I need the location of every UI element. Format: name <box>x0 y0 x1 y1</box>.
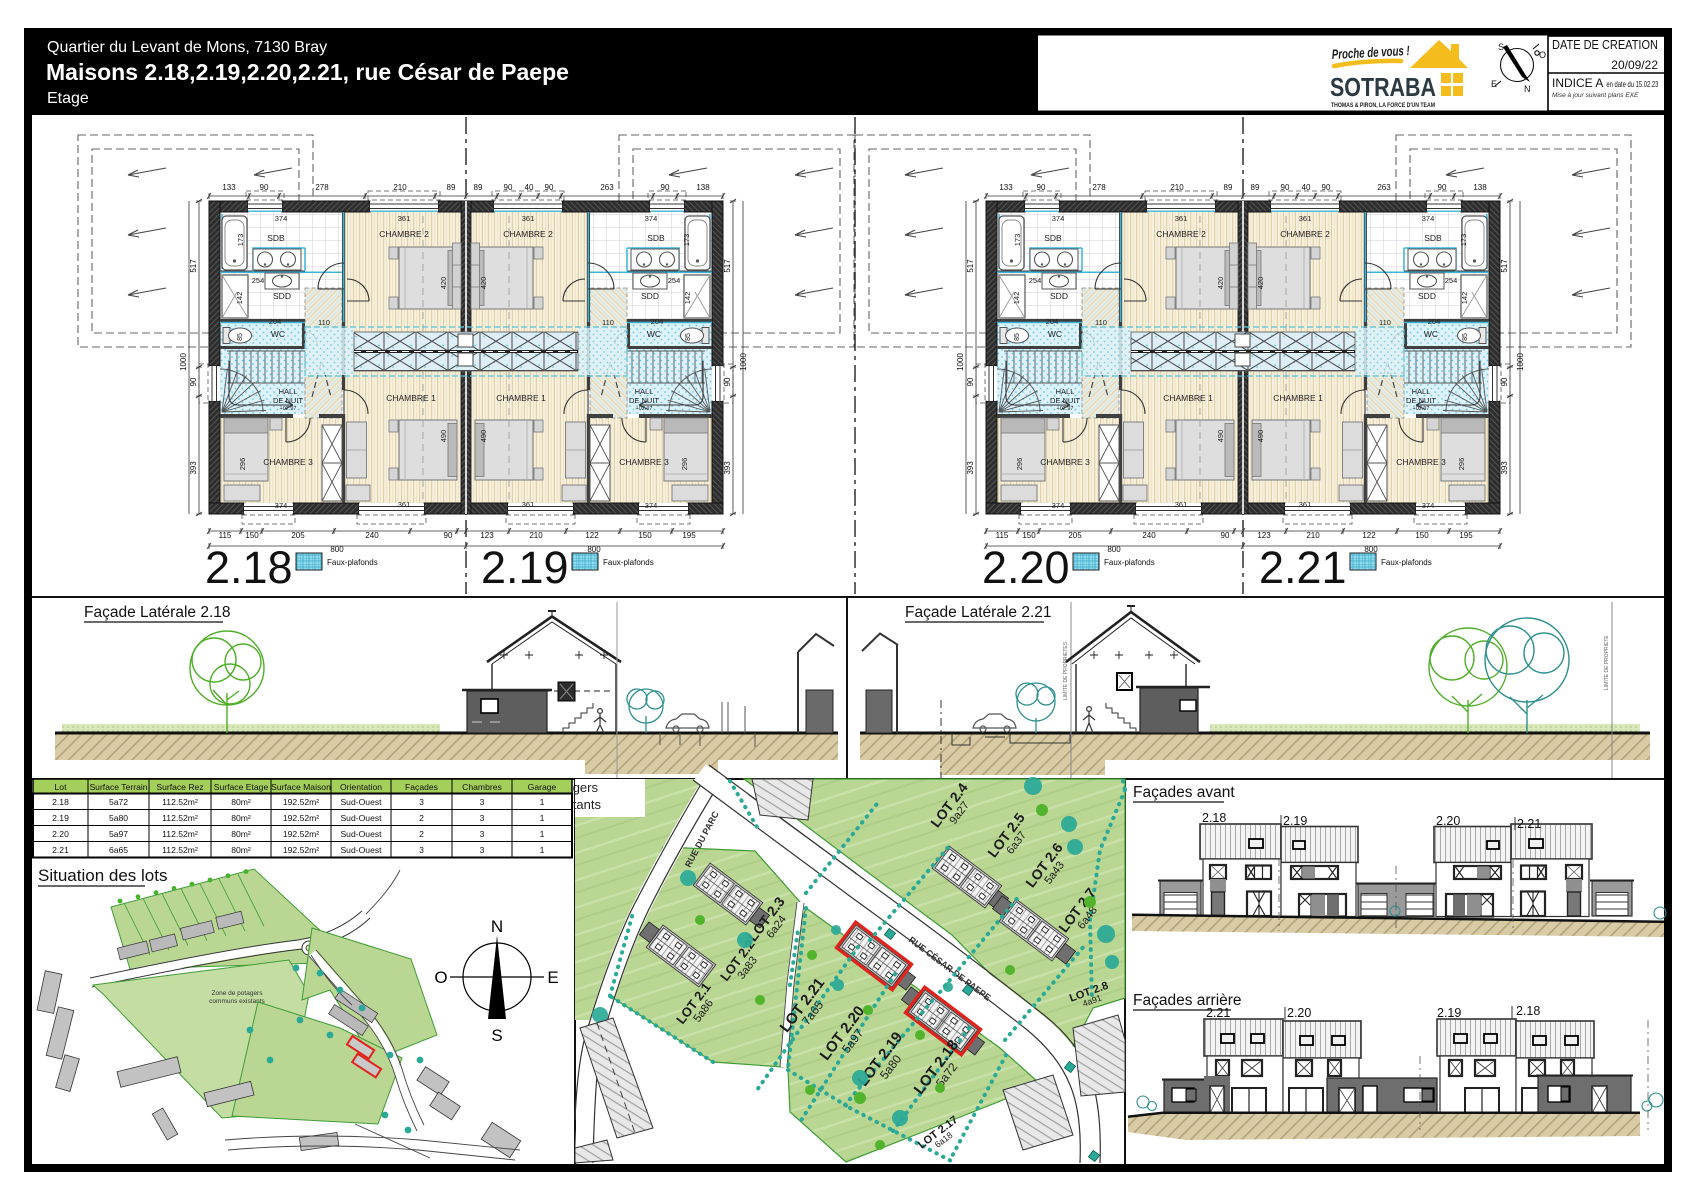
svg-text:89: 89 <box>474 183 483 192</box>
svg-text:Mise à jour suivant plans EXE: Mise à jour suivant plans EXE <box>1552 92 1639 99</box>
svg-text:490: 490 <box>479 430 488 443</box>
svg-text:110: 110 <box>1379 318 1391 327</box>
svg-text:5a80: 5a80 <box>109 813 128 823</box>
svg-text:1: 1 <box>540 813 545 823</box>
svg-text:3: 3 <box>480 829 485 839</box>
svg-text:Maisons 2.18,2.19,2.20,2.21, r: Maisons 2.18,2.19,2.20,2.21, rue César d… <box>46 59 569 85</box>
svg-text:2.21: 2.21 <box>1206 1006 1230 1020</box>
svg-text:Façades avant: Façades avant <box>1133 784 1235 801</box>
svg-text:DE NUIT: DE NUIT <box>629 396 659 405</box>
svg-text:Sud-Ouest: Sud-Ouest <box>340 797 382 807</box>
svg-text:90: 90 <box>1281 183 1290 192</box>
svg-text:90: 90 <box>504 183 513 192</box>
svg-text:122: 122 <box>1362 531 1376 540</box>
svg-text:517: 517 <box>189 259 198 273</box>
svg-text:SDB: SDB <box>1424 233 1442 243</box>
svg-text:DE NUIT: DE NUIT <box>1050 396 1080 405</box>
svg-text:CHAMBRE 1: CHAMBRE 1 <box>1273 393 1323 403</box>
svg-text:1: 1 <box>540 845 545 855</box>
svg-text:192.52m²: 192.52m² <box>283 813 319 823</box>
svg-text:195: 195 <box>1459 531 1473 540</box>
svg-text:254: 254 <box>668 276 681 285</box>
svg-text:296: 296 <box>1015 458 1024 471</box>
svg-text:1000: 1000 <box>1516 353 1525 371</box>
svg-text:361: 361 <box>398 214 411 223</box>
svg-text:1000: 1000 <box>956 353 965 371</box>
svg-text:142: 142 <box>235 292 244 305</box>
svg-text:O: O <box>1539 50 1546 60</box>
svg-text:2.18: 2.18 <box>205 542 293 593</box>
svg-text:40: 40 <box>525 183 534 192</box>
svg-text:361: 361 <box>522 500 535 509</box>
svg-text:90: 90 <box>189 377 198 386</box>
svg-text:517: 517 <box>723 259 732 273</box>
svg-text:N: N <box>491 917 503 936</box>
svg-text:S: S <box>1498 42 1504 52</box>
svg-text:420: 420 <box>1216 277 1225 290</box>
svg-text:Surface Terrain: Surface Terrain <box>89 782 147 792</box>
svg-text:210: 210 <box>1306 531 1320 540</box>
svg-text:296: 296 <box>1457 458 1466 471</box>
svg-text:CHAMBRE 3: CHAMBRE 3 <box>619 457 669 467</box>
svg-text:210: 210 <box>393 183 407 192</box>
svg-text:374: 374 <box>645 501 658 510</box>
svg-text:DE NUIT: DE NUIT <box>1406 396 1436 405</box>
svg-text:115: 115 <box>996 531 1009 540</box>
svg-text:192.52m²: 192.52m² <box>283 845 319 855</box>
svg-text:204: 204 <box>1046 317 1059 326</box>
svg-text:HALL: HALL <box>635 387 654 396</box>
svg-text:89: 89 <box>1224 183 1233 192</box>
svg-text:142: 142 <box>1012 292 1021 305</box>
svg-text:2.20: 2.20 <box>982 542 1070 593</box>
svg-text:110: 110 <box>1095 318 1107 327</box>
svg-text:122: 122 <box>585 531 599 540</box>
svg-text:150: 150 <box>1022 531 1036 540</box>
svg-text:517: 517 <box>1500 259 1509 273</box>
svg-text:3: 3 <box>419 845 424 855</box>
svg-text:1000: 1000 <box>179 353 188 371</box>
svg-text:2.20: 2.20 <box>1436 814 1460 828</box>
svg-text:Sud-Ouest: Sud-Ouest <box>340 829 382 839</box>
svg-text:O: O <box>434 968 447 987</box>
svg-text:150: 150 <box>638 531 652 540</box>
svg-text:90: 90 <box>1322 183 1331 192</box>
svg-text:361: 361 <box>522 214 535 223</box>
svg-text:90: 90 <box>1221 531 1230 540</box>
svg-text:192.52m²: 192.52m² <box>283 829 319 839</box>
svg-text:CHAMBRE 1: CHAMBRE 1 <box>1163 393 1213 403</box>
svg-text:WC: WC <box>1048 329 1062 339</box>
svg-text:CHAMBRE 3: CHAMBRE 3 <box>1040 457 1090 467</box>
svg-text:CHAMBRE 1: CHAMBRE 1 <box>386 393 436 403</box>
svg-text:3: 3 <box>419 797 424 807</box>
svg-text:+02.97: +02.97 <box>1413 406 1430 412</box>
svg-text:263: 263 <box>600 183 614 192</box>
svg-text:SDD: SDD <box>1418 291 1436 301</box>
svg-text:85: 85 <box>685 333 692 341</box>
svg-text:150: 150 <box>1415 531 1429 540</box>
svg-text:Etage: Etage <box>47 90 89 107</box>
svg-text:SDB: SDB <box>1044 233 1062 243</box>
svg-text:112.52m²: 112.52m² <box>162 813 198 823</box>
svg-text:393: 393 <box>723 461 732 475</box>
svg-text:210: 210 <box>1170 183 1184 192</box>
svg-text:CHAMBRE 2: CHAMBRE 2 <box>1280 229 1330 239</box>
svg-text:112.52m²: 112.52m² <box>162 829 198 839</box>
svg-text:138: 138 <box>1473 183 1487 192</box>
svg-text:240: 240 <box>1142 531 1156 540</box>
svg-text:Quartier du Levant de Mons, 71: Quartier du Levant de Mons, 7130 Bray <box>47 39 327 56</box>
svg-text:Façades: Façades <box>405 782 438 792</box>
svg-text:90: 90 <box>966 377 975 386</box>
svg-text:240: 240 <box>365 531 379 540</box>
svg-text:192.52m²: 192.52m² <box>283 797 319 807</box>
svg-text:133: 133 <box>999 183 1013 192</box>
svg-text:2: 2 <box>419 829 424 839</box>
svg-text:2.20: 2.20 <box>1287 1006 1311 1020</box>
svg-text:Lot: Lot <box>55 782 68 792</box>
svg-text:80m²: 80m² <box>231 797 251 807</box>
svg-text:90: 90 <box>545 183 554 192</box>
svg-text:393: 393 <box>966 461 975 475</box>
svg-text:173: 173 <box>1013 234 1022 247</box>
svg-text:+02.97: +02.97 <box>280 406 297 412</box>
svg-text:123: 123 <box>1257 531 1271 540</box>
svg-text:393: 393 <box>1500 461 1509 475</box>
svg-text:142: 142 <box>683 292 692 305</box>
svg-text:20/09/22: 20/09/22 <box>1611 58 1658 72</box>
svg-text:90: 90 <box>1500 377 1509 386</box>
svg-text:374: 374 <box>1422 214 1435 223</box>
svg-text:204: 204 <box>651 317 664 326</box>
svg-text:1: 1 <box>540 797 545 807</box>
svg-text:361: 361 <box>398 500 411 509</box>
svg-text:517: 517 <box>966 259 975 273</box>
svg-text:2.19: 2.19 <box>481 542 569 593</box>
svg-text:374: 374 <box>1052 214 1065 223</box>
svg-text:E: E <box>547 968 558 987</box>
svg-text:210: 210 <box>529 531 543 540</box>
svg-text:90: 90 <box>260 183 269 192</box>
svg-text:110: 110 <box>602 318 614 327</box>
svg-text:5a97: 5a97 <box>109 829 128 839</box>
svg-text:85: 85 <box>237 333 244 341</box>
svg-text:Faux-plafonds: Faux-plafonds <box>1104 558 1155 567</box>
svg-text:Faux-plafonds: Faux-plafonds <box>603 558 654 567</box>
svg-text:490: 490 <box>1256 430 1265 443</box>
svg-text:361: 361 <box>1299 500 1312 509</box>
svg-text:2.19: 2.19 <box>1437 1006 1461 1020</box>
svg-text:40: 40 <box>1302 183 1311 192</box>
svg-text:2.19: 2.19 <box>1283 814 1307 828</box>
svg-text:2.19: 2.19 <box>52 813 69 823</box>
svg-text:Sud-Ouest: Sud-Ouest <box>340 845 382 855</box>
svg-text:SDD: SDD <box>273 291 291 301</box>
svg-text:90: 90 <box>723 377 732 386</box>
svg-text:361: 361 <box>1299 214 1312 223</box>
svg-text:204: 204 <box>1428 317 1441 326</box>
svg-text:150: 150 <box>245 531 259 540</box>
svg-text:133: 133 <box>222 183 236 192</box>
svg-text:tants: tants <box>573 797 602 812</box>
svg-text:CHAMBRE 3: CHAMBRE 3 <box>1396 457 1446 467</box>
svg-text:138: 138 <box>696 183 710 192</box>
svg-text:Zone de potagers: Zone de potagers <box>212 990 264 997</box>
svg-text:80m²: 80m² <box>231 829 251 839</box>
svg-text:296: 296 <box>680 458 689 471</box>
svg-text:374: 374 <box>275 501 288 510</box>
svg-text:SDD: SDD <box>1050 291 1068 301</box>
svg-text:173: 173 <box>236 234 245 247</box>
svg-text:490: 490 <box>439 430 448 443</box>
svg-text:142: 142 <box>1460 292 1469 305</box>
svg-text:gers: gers <box>573 780 599 795</box>
svg-text:LIMITE DE PROPRIETE: LIMITE DE PROPRIETE <box>1604 635 1610 690</box>
svg-text:296: 296 <box>238 458 247 471</box>
svg-text:112.52m²: 112.52m² <box>162 845 198 855</box>
svg-text:254: 254 <box>1029 276 1042 285</box>
svg-text:2.18: 2.18 <box>52 797 69 807</box>
svg-text:6a65: 6a65 <box>109 845 128 855</box>
svg-text:204: 204 <box>269 317 282 326</box>
svg-text:1: 1 <box>540 829 545 839</box>
svg-text:374: 374 <box>275 214 288 223</box>
svg-text:Surface Maison: Surface Maison <box>271 782 331 792</box>
svg-text:374: 374 <box>645 214 658 223</box>
svg-text:115: 115 <box>219 531 232 540</box>
svg-text:80m²: 80m² <box>231 845 251 855</box>
svg-text:Façade Latérale 2.21: Façade Latérale 2.21 <box>905 604 1052 621</box>
svg-text:490: 490 <box>1216 430 1225 443</box>
svg-text:+02.97: +02.97 <box>1057 406 1074 412</box>
svg-text:89: 89 <box>1251 183 1260 192</box>
svg-text:DATE DE CREATION: DATE DE CREATION <box>1552 38 1658 52</box>
svg-text:263: 263 <box>1377 183 1391 192</box>
svg-text:2.18: 2.18 <box>1202 811 1226 825</box>
svg-text:CHAMBRE 1: CHAMBRE 1 <box>496 393 546 403</box>
svg-text:Orientation: Orientation <box>340 782 382 792</box>
svg-text:Façade Latérale 2.18: Façade Latérale 2.18 <box>84 604 231 621</box>
svg-text:SDB: SDB <box>267 233 285 243</box>
svg-text:374: 374 <box>1422 501 1435 510</box>
svg-text:420: 420 <box>1256 277 1265 290</box>
svg-text:90: 90 <box>1037 183 1046 192</box>
svg-text:3: 3 <box>480 845 485 855</box>
svg-text:393: 393 <box>189 461 198 475</box>
svg-text:Faux-plafonds: Faux-plafonds <box>327 558 378 567</box>
svg-text:2.21: 2.21 <box>1517 817 1541 831</box>
svg-text:Surface Etage: Surface Etage <box>214 782 269 792</box>
svg-text:2.20: 2.20 <box>52 829 69 839</box>
svg-text:Sud-Ouest: Sud-Ouest <box>340 813 382 823</box>
svg-text:90: 90 <box>661 183 670 192</box>
svg-text:S: S <box>491 1026 502 1045</box>
svg-text:N: N <box>1524 84 1531 94</box>
svg-text:+02.97: +02.97 <box>636 406 653 412</box>
svg-text:1000: 1000 <box>739 353 748 371</box>
svg-text:5a72: 5a72 <box>109 797 128 807</box>
svg-text:Faux-plafonds: Faux-plafonds <box>1381 558 1432 567</box>
svg-text:HALL: HALL <box>279 387 298 396</box>
svg-text:Chambres: Chambres <box>462 782 502 792</box>
svg-text:CHAMBRE 2: CHAMBRE 2 <box>1156 229 1206 239</box>
svg-text:205: 205 <box>291 531 305 540</box>
svg-text:2.21: 2.21 <box>1259 542 1347 593</box>
svg-text:Garage: Garage <box>528 782 557 792</box>
svg-text:Surface Rez: Surface Rez <box>156 782 203 792</box>
svg-text:85: 85 <box>1462 333 1469 341</box>
svg-text:HALL: HALL <box>1056 387 1075 396</box>
svg-text:173: 173 <box>682 234 691 247</box>
svg-text:278: 278 <box>315 183 329 192</box>
svg-text:254: 254 <box>252 276 265 285</box>
svg-text:420: 420 <box>439 277 448 290</box>
svg-text:DE NUIT: DE NUIT <box>273 396 303 405</box>
svg-text:420: 420 <box>479 277 488 290</box>
svg-text:85: 85 <box>1014 333 1021 341</box>
svg-text:2.21: 2.21 <box>52 845 69 855</box>
svg-text:LIMITE DE PROPRIETES: LIMITE DE PROPRIETES <box>1063 641 1069 700</box>
svg-text:SOTRABA: SOTRABA <box>1330 72 1436 102</box>
svg-text:90: 90 <box>444 531 453 540</box>
svg-text:WC: WC <box>271 329 285 339</box>
svg-text:361: 361 <box>1175 214 1188 223</box>
svg-text:3: 3 <box>480 813 485 823</box>
svg-text:THOMAS & PIRON, LA FORCE D'UN: THOMAS & PIRON, LA FORCE D'UN TEAM <box>1331 102 1435 109</box>
svg-text:173: 173 <box>1459 234 1468 247</box>
svg-text:123: 123 <box>480 531 494 540</box>
svg-text:CHAMBRE 2: CHAMBRE 2 <box>503 229 553 239</box>
svg-text:CHAMBRE 3: CHAMBRE 3 <box>263 457 313 467</box>
svg-text:112.52m²: 112.52m² <box>162 797 198 807</box>
svg-text:278: 278 <box>1092 183 1106 192</box>
svg-text:2: 2 <box>419 813 424 823</box>
svg-text:374: 374 <box>1052 501 1065 510</box>
svg-text:205: 205 <box>1068 531 1082 540</box>
svg-text:254: 254 <box>1445 276 1458 285</box>
svg-text:E: E <box>1491 79 1497 89</box>
svg-text:110: 110 <box>318 318 330 327</box>
svg-text:WC: WC <box>1424 329 1438 339</box>
svg-text:89: 89 <box>447 183 456 192</box>
svg-text:90: 90 <box>1438 183 1447 192</box>
svg-text:CHAMBRE 2: CHAMBRE 2 <box>379 229 429 239</box>
svg-text:2.18: 2.18 <box>1516 1004 1540 1018</box>
svg-text:361: 361 <box>1175 500 1188 509</box>
svg-text:SDD: SDD <box>641 291 659 301</box>
svg-text:195: 195 <box>682 531 696 540</box>
svg-text:80m²: 80m² <box>231 813 251 823</box>
svg-text:HALL: HALL <box>1412 387 1431 396</box>
svg-text:Situation des lots: Situation des lots <box>38 866 167 885</box>
svg-text:WC: WC <box>647 329 661 339</box>
svg-text:SDB: SDB <box>647 233 665 243</box>
svg-text:3: 3 <box>480 797 485 807</box>
